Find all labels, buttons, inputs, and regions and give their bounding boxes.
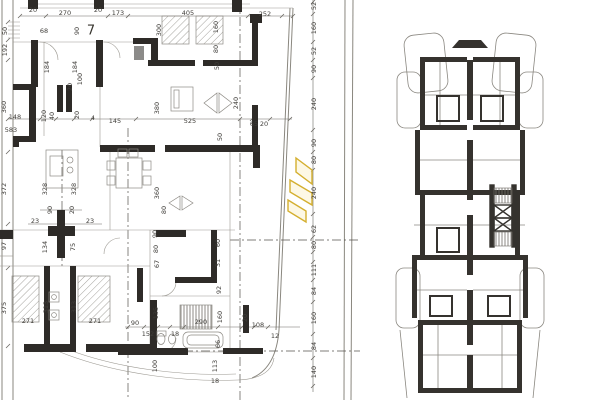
bidet	[169, 334, 176, 344]
left-plan-walls	[0, 0, 263, 355]
overview-plan	[396, 32, 544, 398]
floor-plan-drawing	[0, 0, 600, 400]
radiator	[180, 305, 212, 329]
floor-plan-sheet: 7270173405252202050192360372973756890184…	[0, 0, 600, 400]
bed-3	[162, 16, 189, 44]
bed-2	[78, 276, 110, 322]
stairs-lower	[494, 232, 512, 246]
tv-cabinet	[171, 87, 193, 111]
bed-1	[12, 276, 39, 322]
dining-table	[107, 149, 151, 188]
toilet	[157, 331, 166, 345]
highlight-marker	[288, 158, 312, 222]
bed-4	[196, 16, 223, 44]
bathtub	[183, 332, 223, 348]
stairs-upper	[494, 188, 512, 203]
